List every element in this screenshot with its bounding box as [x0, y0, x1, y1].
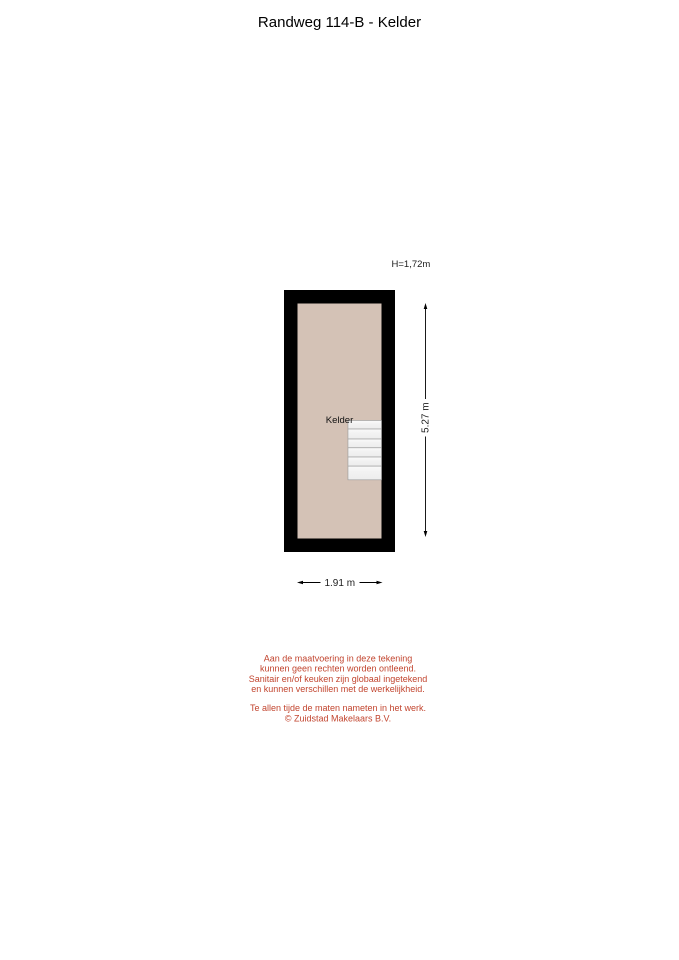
svg-text:1.91 m: 1.91 m: [324, 578, 355, 589]
svg-text:H=1,72m: H=1,72m: [392, 259, 431, 270]
svg-text:Te allen tijde de maten namete: Te allen tijde de maten nameten in het w…: [250, 703, 426, 713]
svg-text:Sanitair en/of keuken zijn glo: Sanitair en/of keuken zijn globaal inget…: [249, 674, 428, 684]
svg-text:Aan de maatvoering in deze tek: Aan de maatvoering in deze tekening: [264, 653, 413, 663]
svg-text:Kelder: Kelder: [326, 415, 353, 426]
svg-text:5.27 m: 5.27 m: [421, 402, 432, 433]
svg-text:kunnen geen rechten worden ont: kunnen geen rechten worden ontleend.: [260, 664, 416, 674]
svg-text:Randweg 114-B - Kelder: Randweg 114-B - Kelder: [258, 14, 421, 31]
svg-text:en kunnen verschillen met de w: en kunnen verschillen met de werkelijkhe…: [251, 684, 425, 694]
svg-text:© Zuidstad Makelaars B.V.: © Zuidstad Makelaars B.V.: [285, 714, 391, 724]
